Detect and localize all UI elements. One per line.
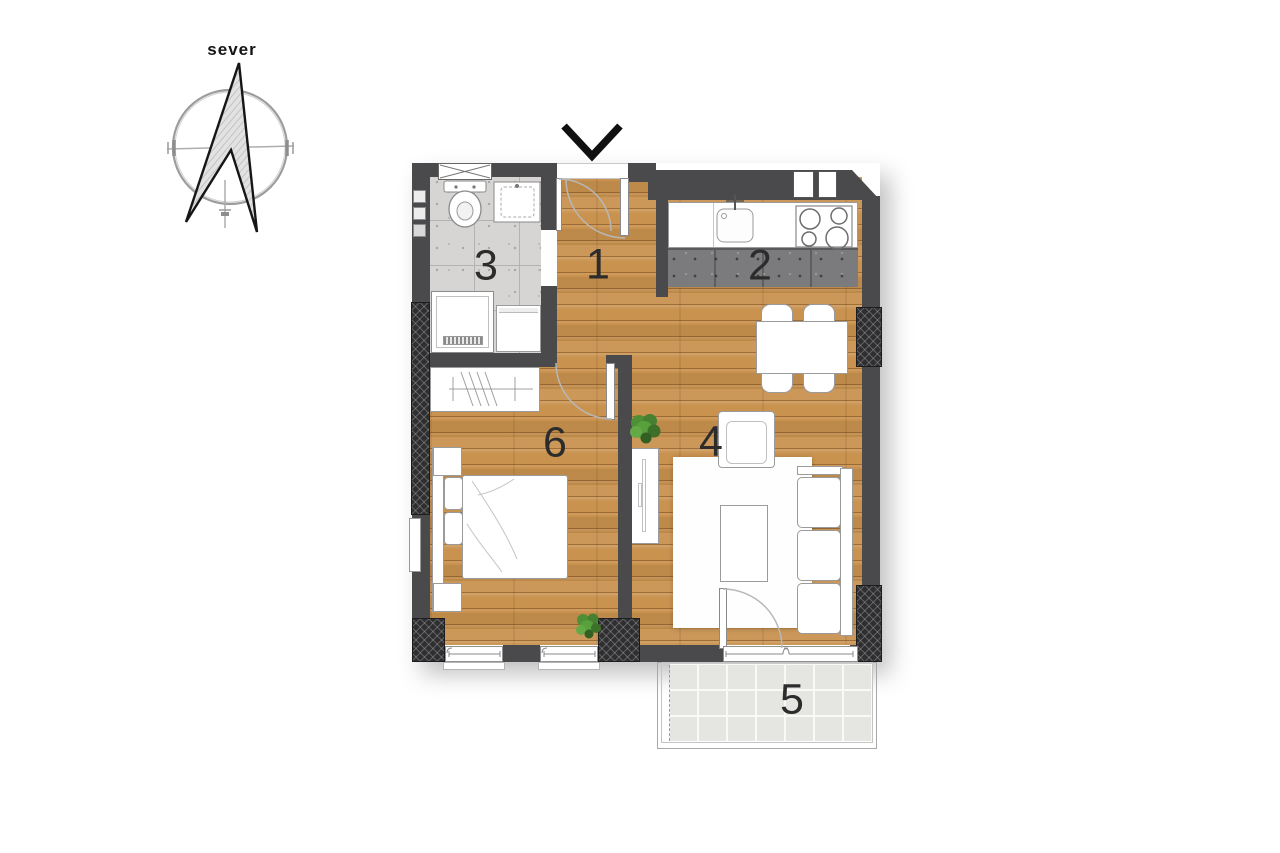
kitchen-vent-shaft-1 bbox=[793, 171, 814, 198]
kitchen-counter-divider bbox=[713, 203, 714, 247]
shaft-box-3 bbox=[413, 224, 426, 237]
room-label-bathroom: 3 bbox=[474, 245, 498, 288]
bathroom-door-leaf bbox=[556, 178, 562, 231]
wall-hatch-right-lower bbox=[856, 585, 882, 662]
nightstand-top bbox=[433, 447, 462, 476]
bathroom-door-opening bbox=[541, 230, 557, 286]
room-label-balcony: 5 bbox=[780, 679, 804, 722]
coffee-table bbox=[720, 505, 768, 582]
entrance-arrow-icon bbox=[558, 120, 628, 165]
sofa-top-armrest bbox=[797, 466, 843, 475]
entrance-door-leaf bbox=[620, 178, 629, 236]
shaft-box-1 bbox=[413, 190, 426, 203]
bed-pillow-2 bbox=[444, 512, 463, 545]
sofa-cushion-3 bbox=[797, 583, 841, 634]
room-label-bedroom: 6 bbox=[543, 422, 567, 465]
balcony-door-leaf bbox=[719, 588, 727, 649]
armchair-seat bbox=[726, 421, 767, 464]
wall-hatch-right-upper bbox=[856, 307, 882, 367]
kitchen-vent-shaft-2 bbox=[818, 171, 837, 198]
wall-bedroom-living-partition bbox=[618, 355, 632, 645]
room-label-kitchen: 2 bbox=[748, 245, 772, 288]
bedroom-door-leaf bbox=[606, 363, 615, 420]
bathroom-vent-shaft bbox=[438, 163, 492, 180]
sofa-backrest bbox=[840, 468, 853, 636]
window-sill-2 bbox=[538, 662, 600, 670]
shower-drain-grille bbox=[443, 336, 483, 345]
balcony-dashed-line bbox=[669, 665, 670, 741]
nightstand-bottom bbox=[433, 583, 462, 612]
wall-bathroom-bottom bbox=[412, 353, 557, 367]
wall-kitchen-partition bbox=[656, 198, 668, 297]
tv-cabinet-handle-2 bbox=[638, 483, 642, 507]
tv-cabinet-handle bbox=[642, 459, 646, 532]
wall-bathroom-right-upper bbox=[541, 177, 557, 230]
wall-bottom-mullion bbox=[503, 645, 540, 662]
washing-machine-panel bbox=[499, 308, 538, 313]
shaft-box-2 bbox=[413, 207, 426, 220]
compass-rose-icon bbox=[163, 30, 313, 245]
entrance-door-opening bbox=[557, 163, 628, 179]
window-sill-1 bbox=[443, 662, 505, 670]
room-label-hallway: 1 bbox=[586, 244, 610, 287]
wall-bottom-3 bbox=[640, 645, 723, 662]
wall-hatch-left bbox=[411, 302, 430, 515]
wardrobe bbox=[430, 367, 540, 412]
sofa-cushion-1 bbox=[797, 477, 841, 528]
wall-left-niche bbox=[409, 518, 421, 572]
wall-hatch-partition-column bbox=[598, 618, 640, 662]
dining-table bbox=[756, 321, 848, 374]
wall-hatch-bottom-left-corner bbox=[412, 618, 445, 662]
room-label-living-room: 4 bbox=[699, 421, 723, 464]
wall-bathroom-right-lower bbox=[541, 286, 557, 353]
balcony-window-band bbox=[723, 646, 858, 662]
balcony-floor-tiles bbox=[670, 664, 872, 741]
sofa-cushion-2 bbox=[797, 530, 841, 581]
bedroom-window-2 bbox=[540, 646, 598, 662]
floor-plan-page: sever bbox=[0, 0, 1280, 853]
bed-pillow-1 bbox=[444, 477, 463, 510]
bed-mattress bbox=[462, 475, 568, 579]
bedroom-window-1 bbox=[445, 646, 503, 662]
